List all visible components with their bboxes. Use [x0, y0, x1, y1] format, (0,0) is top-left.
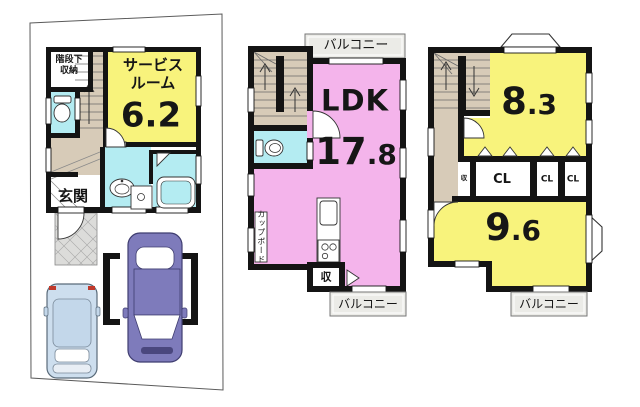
area-ldk-main: 17 — [315, 130, 367, 174]
label-balcony-2f-bottom: バルコニー — [338, 297, 398, 311]
window — [586, 73, 592, 103]
window — [248, 174, 254, 196]
door-gap — [58, 207, 84, 213]
door-gap — [307, 142, 313, 160]
label-service-room-line2: ルーム — [123, 74, 183, 92]
window — [46, 98, 51, 124]
label-under-stairs-storage: 階段下 収納 — [55, 55, 82, 77]
bathtub-icon — [157, 177, 195, 208]
toilet-icon-2f — [256, 140, 283, 156]
window — [196, 156, 201, 184]
area-service-room: 6.2 — [121, 96, 181, 137]
label-cupboard: カップボード — [256, 210, 266, 264]
window — [196, 76, 201, 106]
area-room-9-6-main: 9 — [485, 206, 511, 250]
label-closet-3: CL — [567, 175, 579, 186]
balcony-door — [533, 286, 569, 292]
label-service-room-line1: サービス — [123, 56, 183, 74]
window — [504, 47, 556, 53]
kitchen-counter — [317, 198, 340, 264]
label-closet-2: CL — [541, 175, 553, 186]
car-sedan — [123, 233, 187, 362]
label-service-room: サービス ルーム — [123, 56, 183, 92]
window — [248, 88, 254, 112]
door-gap — [75, 98, 80, 120]
area-room-9-6-frac: .6 — [511, 214, 541, 248]
label-under-stairs-storage-line2: 収納 — [55, 66, 82, 77]
label-balcony-2f-top: バルコニー — [324, 38, 389, 54]
area-room-9-6: 9.6 — [485, 206, 541, 250]
label-ldk: LDK — [321, 84, 389, 119]
floor-plan-image: 階段下 収納 サービス ルーム 6.2 玄関 バルコニー LDK 17.8 カッ… — [0, 0, 640, 407]
window — [248, 228, 254, 252]
label-closet-1: CL — [493, 172, 511, 188]
window — [400, 80, 406, 110]
toilet-icon-1f — [54, 96, 71, 122]
area-room-8-3-frac: .3 — [527, 88, 557, 122]
balcony-door — [352, 286, 386, 292]
sink-icon — [110, 179, 134, 197]
window — [586, 215, 592, 263]
window — [586, 120, 592, 144]
hall-3f — [434, 115, 458, 202]
window — [428, 210, 434, 238]
area-room-8-3: 8.3 — [501, 80, 557, 124]
balcony-door — [329, 58, 383, 64]
bay-window-top — [501, 34, 560, 47]
window — [428, 128, 434, 156]
label-balcony-3f: バルコニー — [519, 297, 579, 311]
label-under-stairs-storage-line1: 階段下 — [55, 55, 82, 66]
window — [46, 148, 51, 172]
floor-plan-drawing — [0, 0, 640, 407]
window — [400, 148, 406, 178]
washing-machine-icon — [131, 186, 152, 209]
area-ldk: 17.8 — [315, 130, 397, 174]
area-ldk-frac: .8 — [367, 138, 397, 172]
label-storage-2f: 収 — [321, 270, 332, 283]
car-compact — [44, 284, 100, 378]
area-room-8-3-main: 8 — [501, 80, 527, 124]
window — [455, 261, 479, 267]
window — [113, 47, 145, 52]
window — [400, 220, 406, 252]
label-entrance: 玄関 — [58, 187, 88, 205]
label-closet-small-3f: 収 — [461, 175, 468, 183]
